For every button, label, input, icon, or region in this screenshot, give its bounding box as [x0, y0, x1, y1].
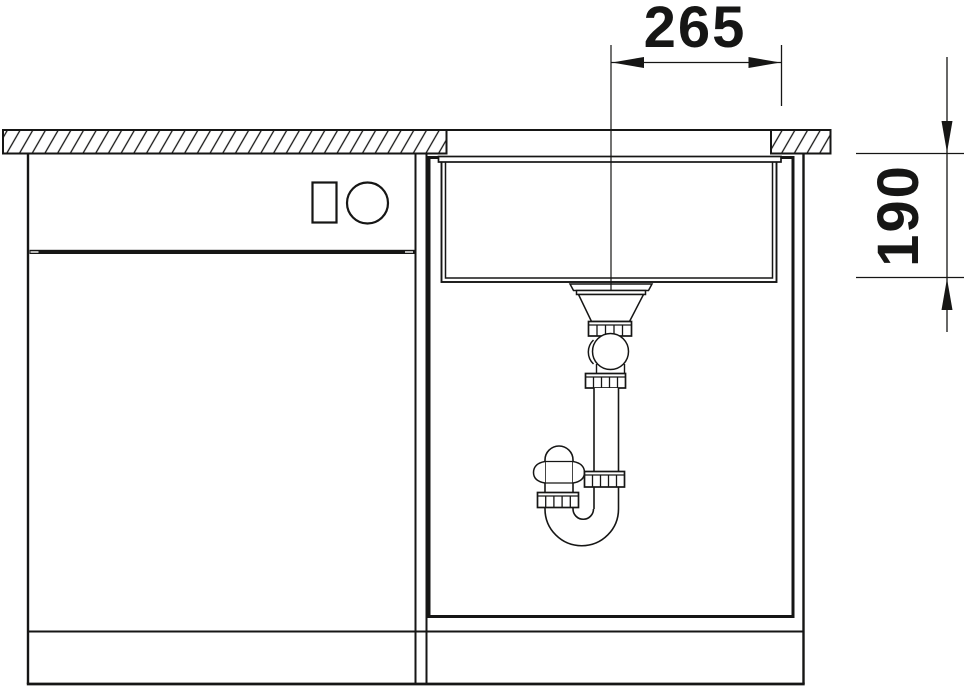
dim-depth-arrow-top	[942, 121, 953, 153]
dim-depth-label: 190	[866, 164, 931, 267]
panel-rectangle-marking	[313, 183, 337, 223]
sink-bowl	[439, 157, 782, 283]
sink-rim	[439, 157, 782, 163]
dim-width-arrow-right	[749, 57, 781, 68]
appliance-panel-markings	[313, 183, 389, 224]
countertop-hatch-right	[771, 130, 831, 154]
locknut-elbow	[586, 374, 626, 389]
dim-width-label: 265	[644, 0, 747, 60]
union-bump-right	[573, 462, 585, 484]
locknut-tailpipe	[585, 472, 625, 488]
strainer-cup	[579, 295, 644, 322]
union-bump-left	[534, 462, 546, 484]
p-trap-bend	[545, 509, 619, 546]
dimension-depth: 190	[856, 57, 964, 332]
countertop	[3, 130, 831, 154]
drawer-gap-line	[30, 250, 416, 254]
panel-circle-marking	[347, 183, 388, 224]
countertop-hatch-left	[3, 130, 447, 154]
ball-elbow	[588, 334, 628, 374]
drain-assembly	[534, 45, 653, 546]
dimension-width: 265	[611, 0, 782, 106]
sink-cabinet-section-drawing: 265 190	[0, 0, 970, 695]
sink-bowl-inner	[446, 159, 773, 278]
technical-drawing-canvas: 265 190	[0, 0, 970, 695]
dim-width-arrow-left	[612, 57, 644, 68]
locknut-trap-inlet	[538, 493, 579, 508]
left-cabinet	[28, 154, 416, 685]
tailpipe	[594, 388, 619, 509]
dim-depth-arrow-bottom	[942, 279, 953, 311]
